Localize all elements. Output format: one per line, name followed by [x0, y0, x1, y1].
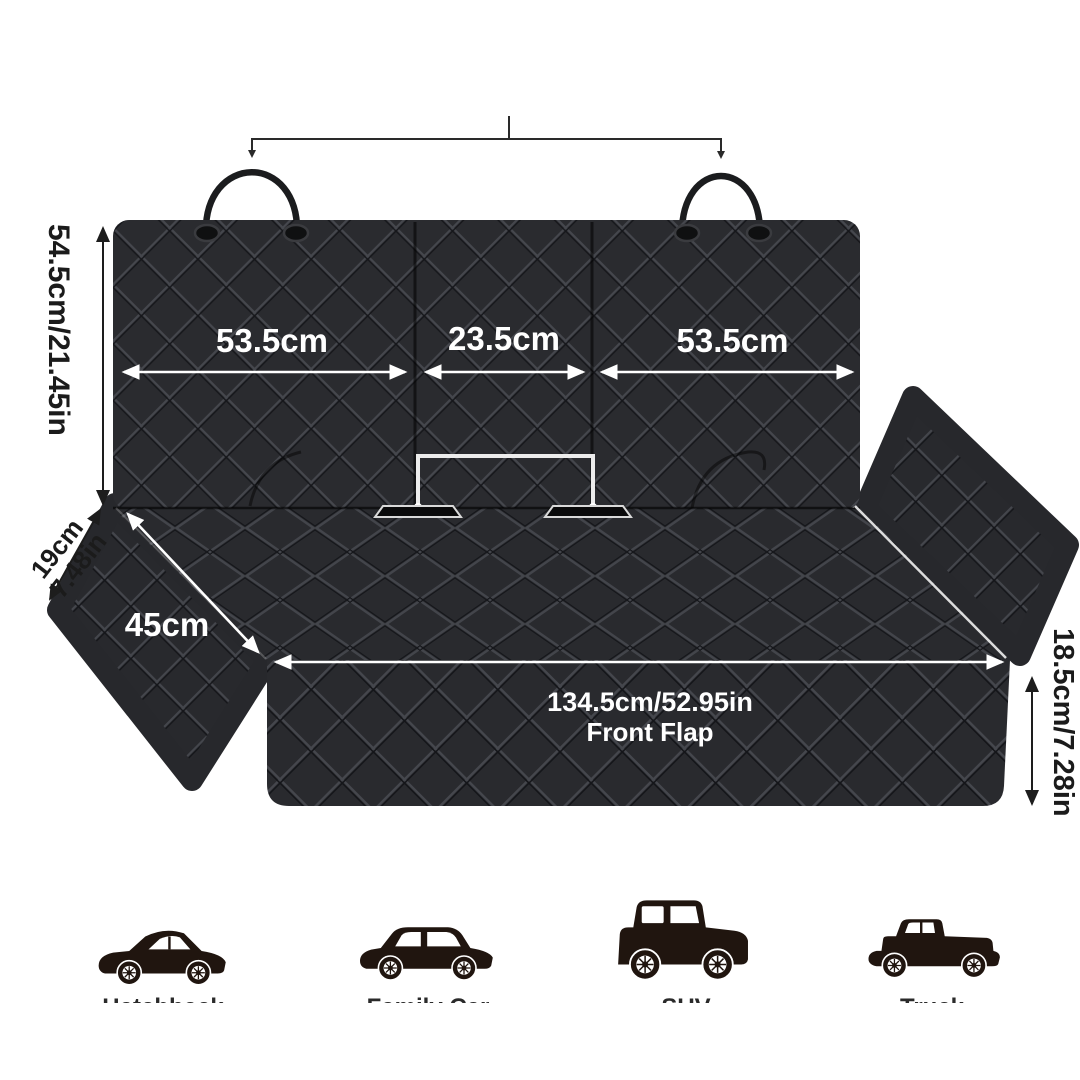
seat-deck — [113, 508, 1010, 660]
back-panel — [113, 220, 860, 510]
vehicle-label-hatchback: Hatchback — [63, 994, 263, 1003]
vehicle-truck-icon — [862, 906, 1008, 986]
vehicle-label-family-car-clip: Family Car — [328, 994, 528, 1003]
label-back-left-width: 53.5cm — [187, 324, 357, 359]
label-back-right-width: 53.5cm — [645, 324, 820, 359]
vehicle-label-hatchback-clip: Hatchback — [63, 994, 263, 1003]
bracket-arrow-right — [717, 151, 725, 159]
buckle-strap-left — [375, 506, 461, 517]
vehicle-label-suv-clip: SUV — [586, 994, 786, 1003]
buckle-strap-right — [545, 506, 631, 517]
seat-cover-dimension-diagram: 53.5cm 23.5cm 53.5cm 54.5cm/21.45in 19cm… — [0, 0, 1080, 1080]
vehicle-hatchback-icon — [90, 914, 236, 988]
vehicle-label-truck-clip: Truck — [832, 994, 1032, 1003]
vehicle-family-car-icon — [352, 910, 504, 986]
label-back-height: 54.5cm/21.45in — [43, 224, 75, 436]
label-back-middle-width: 23.5cm — [418, 322, 590, 357]
vehicle-label-suv: SUV — [586, 994, 786, 1003]
vehicle-label-family-car: Family Car — [328, 994, 528, 1003]
bracket-arrow-left — [248, 150, 256, 158]
label-seat-depth: 45cm — [102, 608, 232, 643]
label-front-flap-name: Front Flap — [455, 719, 845, 746]
vehicle-label-truck: Truck — [832, 994, 1032, 1003]
label-front-height: 18.5cm/7.28in — [1048, 628, 1078, 817]
label-front-width: 134.5cm/52.95in — [455, 688, 845, 716]
strap-span-bracket — [252, 116, 721, 153]
vehicle-suv-icon — [608, 890, 764, 990]
